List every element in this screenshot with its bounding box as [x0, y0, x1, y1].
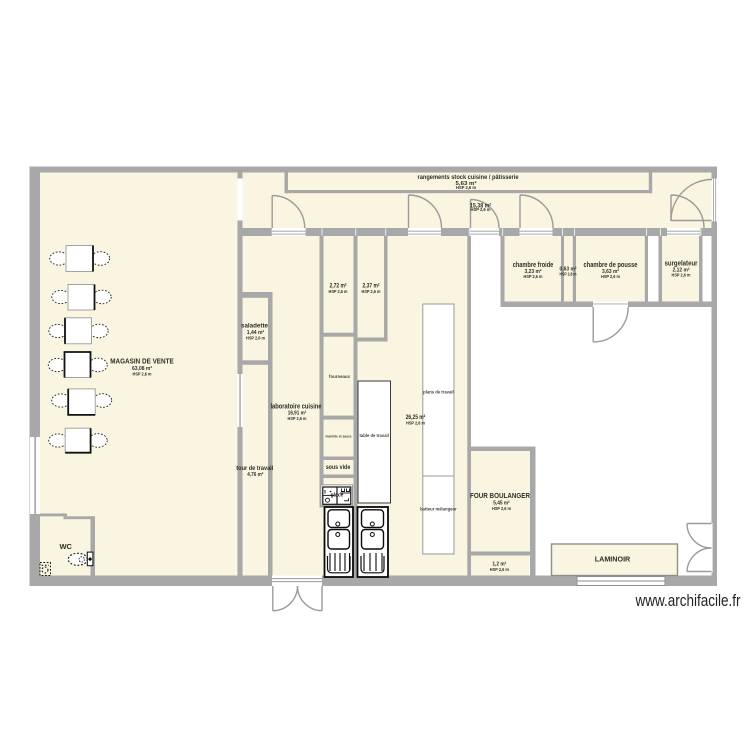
svg-text:FOUR BOULANGER: FOUR BOULANGER: [470, 491, 530, 500]
svg-text:HSP 2,6 m: HSP 2,6 m: [133, 371, 152, 376]
svg-text:glace: glace: [331, 493, 344, 499]
svg-text:plans de travail: plans de travail: [423, 390, 454, 395]
svg-text:HSP 2,6 m: HSP 2,6 m: [406, 421, 425, 426]
svg-text:saladette: saladette: [241, 323, 268, 330]
svg-text:fourneaux: fourneaux: [329, 374, 351, 379]
svg-text:4,76 m²: 4,76 m²: [247, 471, 263, 478]
svg-text:HSP 2,6 m: HSP 2,6 m: [560, 272, 577, 277]
svg-text:HSP 2,6 m: HSP 2,6 m: [490, 567, 509, 572]
svg-text:tour de travail: tour de travail: [236, 465, 273, 472]
svg-text:HSP 2,6 m: HSP 2,6 m: [492, 506, 511, 511]
svg-text:HSP 2,6 m: HSP 2,6 m: [471, 207, 491, 212]
svg-text:MAGASIN DE VENTE: MAGASIN DE VENTE: [110, 357, 174, 366]
svg-text:HSP 2,6 m: HSP 2,6 m: [524, 274, 543, 279]
svg-text:table de travail: table de travail: [360, 433, 389, 438]
svg-text:sous vide: sous vide: [326, 464, 351, 471]
svg-text:marmite et sauce: marmite et sauce: [326, 435, 352, 439]
svg-text:HSP 2,6 m: HSP 2,6 m: [246, 335, 265, 340]
svg-text:WC: WC: [59, 542, 72, 551]
svg-text:laboratoire cuisine: laboratoire cuisine: [271, 404, 322, 411]
svg-text:LAMINOIR: LAMINOIR: [595, 557, 631, 564]
svg-text:HSP 2,6 m: HSP 2,6 m: [456, 185, 476, 190]
svg-text:HSP 2,6 m: HSP 2,6 m: [329, 289, 348, 294]
svg-text:HSP 2,6 m: HSP 2,6 m: [288, 416, 307, 421]
svg-text:HSP 2,6 m: HSP 2,6 m: [362, 289, 381, 294]
svg-text:batteur mélangeur: batteur mélangeur: [420, 507, 457, 512]
svg-text:www.archifacile.fr: www.archifacile.fr: [635, 591, 741, 610]
svg-text:HSP 2,6 m: HSP 2,6 m: [601, 274, 620, 279]
svg-text:HSP 2,6 m: HSP 2,6 m: [672, 273, 691, 278]
